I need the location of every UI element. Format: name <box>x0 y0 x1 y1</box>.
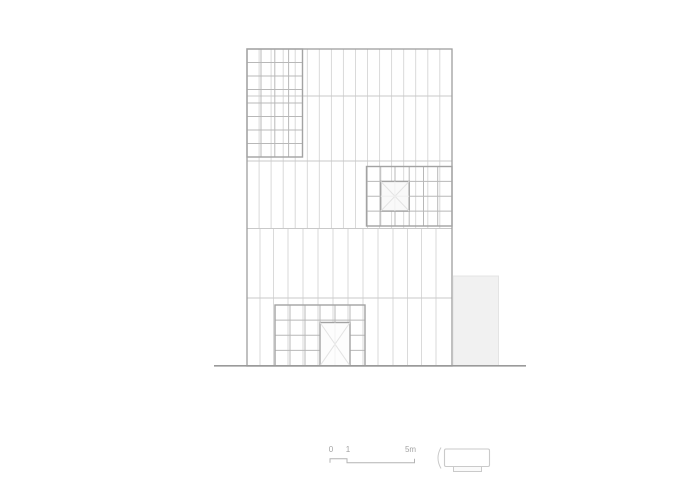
entrance-grid <box>275 305 365 366</box>
annex-volume <box>453 276 499 366</box>
bracket-icon <box>438 448 441 469</box>
scale-bar: 015m <box>329 445 417 463</box>
elevation-sheet: 015m <box>0 0 700 500</box>
annex-building <box>453 276 499 366</box>
building-side-icon-body <box>445 449 490 467</box>
scale-bar-profile <box>330 459 415 463</box>
scale-label-five-m: 5m <box>405 445 416 454</box>
scale-label-zero: 0 <box>329 445 334 454</box>
scale-label-one: 1 <box>346 445 351 454</box>
legend-icon <box>438 448 490 472</box>
elevation-drawing: 015m <box>0 0 700 500</box>
window-grid-top-left <box>247 49 303 157</box>
building-side-icon-base <box>454 467 482 472</box>
